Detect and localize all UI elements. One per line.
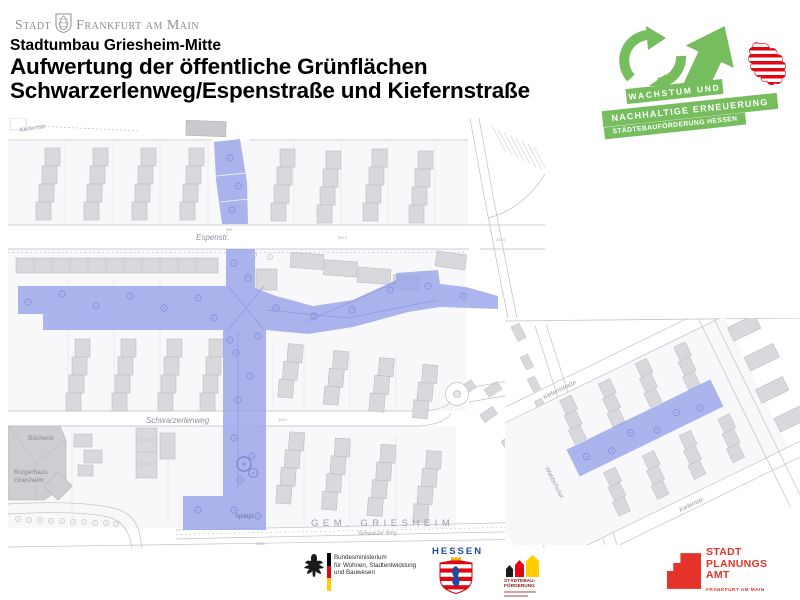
stadtplanungsamt-label: STADT PLANUNGS AMT FRANKFURT AM MAIN: [706, 547, 767, 596]
recycle-arrows-icon: [624, 26, 681, 86]
hessen-shield-icon: [438, 557, 474, 599]
label-buergerhaus-2: Griesheim: [14, 477, 44, 484]
road-number: 2613: [496, 237, 506, 242]
growth-logo-graphic: [596, 26, 796, 86]
label-schwarzerlenweg: Schwarzerlenweg: [146, 416, 210, 425]
city-logo-name: Frankfurt am Main: [76, 18, 199, 34]
stb-fineprint-bar: [504, 591, 536, 593]
ministry-line-1: Bundesministerium: [334, 554, 416, 562]
city-logo-stadt: Stadt: [15, 18, 51, 34]
spa-line-4: FRANKFURT AM MAIN: [706, 585, 767, 597]
hessen-wordmark: HESSEN: [432, 546, 483, 557]
title-line-1: Aufwertung der öffentliche Grünflächen: [10, 55, 530, 79]
ministry-line-2: für Wohnen, Stadtentwicklung: [334, 562, 416, 570]
document-title: Aufwertung der öffentliche Grünflächen S…: [10, 55, 530, 103]
federal-eagle-icon: [304, 554, 324, 583]
spa-line-1: STADT: [706, 547, 767, 559]
growth-arrow-icon: [668, 26, 748, 86]
inset-map: Kiefernstraße Kiefernstr. Waldschulstr.: [505, 318, 800, 545]
label-schwarzer-weg: Schwarzer Weg: [358, 530, 397, 537]
label-buecherei: Bücherei: [28, 435, 54, 442]
document-subtitle: Stadtumbau Griesheim-Mitte: [10, 37, 221, 54]
crown-icon: [451, 557, 461, 560]
ministry-label: Bundesministerium für Wohnen, Stadtentwi…: [334, 554, 416, 577]
label-spielplatz: Spielpl.: [235, 514, 255, 520]
stadtplanungsamt-mark-icon: [667, 551, 701, 596]
label-gemarkung: GEM. GRIESHEIM: [311, 518, 454, 529]
staedtebaufoerderung-label: STÄDTEBAU- FÖRDERUNG: [504, 579, 536, 597]
stb-fineprint-bar: [504, 595, 528, 597]
footer-logo-bar: Bundesministerium für Wohnen, Stadtentwi…: [0, 545, 800, 600]
label-buergerhaus-1: Bürgerhaus: [14, 469, 48, 476]
ministry-line-3: und Bauwesen: [334, 569, 416, 577]
title-line-2: Schwarzerlenweg/Espenstraße und Kieferns…: [10, 79, 530, 103]
spa-line-3: AMT: [706, 570, 767, 582]
city-logo: Stadt Frankfurt am Main: [15, 13, 199, 38]
label-kiefernstr: Kiefernstr.: [19, 124, 47, 134]
road-number: 895: [226, 228, 232, 232]
growth-logo: WACHSTUM UND NACHHALTIGE ERNEUERUNG STÄD…: [596, 26, 796, 141]
german-flag-stripe: [327, 553, 331, 591]
road-number: 2612: [338, 235, 348, 240]
page: Stadt Frankfurt am Main Stadtumbau Gries…: [0, 0, 800, 600]
hessen-lion-icon: [748, 43, 785, 85]
parking-hatches: [492, 126, 545, 170]
main-map: Espenstr. Schwarzerlenweg Kiefernstr. Sc…: [8, 118, 545, 548]
road-number: 1812: [278, 417, 288, 422]
stb-line-2: FÖRDERUNG: [504, 584, 536, 589]
frankfurt-crest-icon: [55, 13, 72, 38]
label-espenstrasse: Espenstr.: [196, 233, 230, 242]
